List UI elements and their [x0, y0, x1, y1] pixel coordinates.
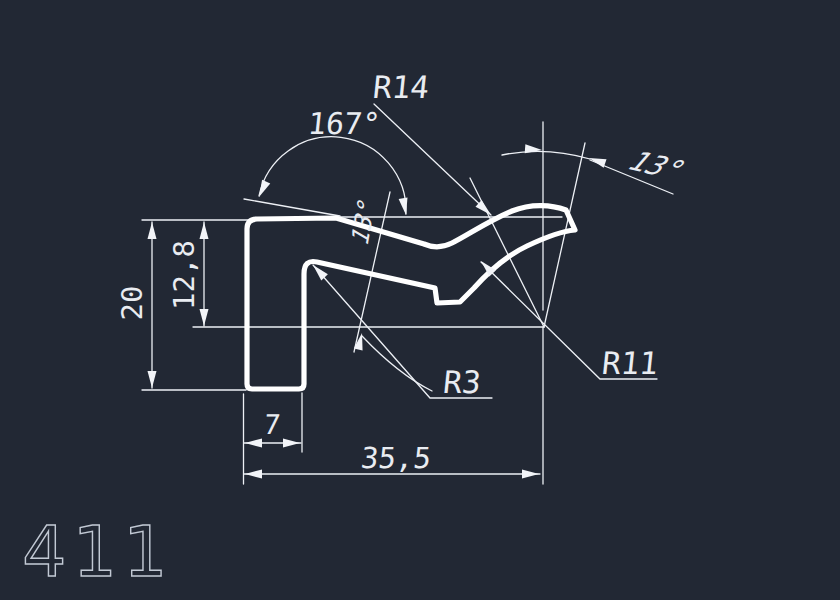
technical-drawing: 167° R14 13° 13° 20 12,8 R3 R11 7 35,5 4…: [0, 0, 840, 600]
label-radius-r14: R14: [371, 69, 431, 105]
part-number-label: 411: [22, 511, 174, 593]
cad-canvas: 167° R14 13° 13° 20 12,8 R3 R11 7 35,5 4…: [0, 0, 840, 600]
label-width-35-5: 35,5: [359, 441, 432, 475]
label-width-7: 7: [262, 409, 282, 440]
label-height-12-8: 12,8: [167, 240, 201, 310]
label-radius-r11: R11: [600, 345, 660, 381]
label-radius-r3: R3: [442, 364, 483, 400]
label-angle-167: 167°: [306, 106, 382, 141]
label-height-20: 20: [115, 286, 149, 321]
